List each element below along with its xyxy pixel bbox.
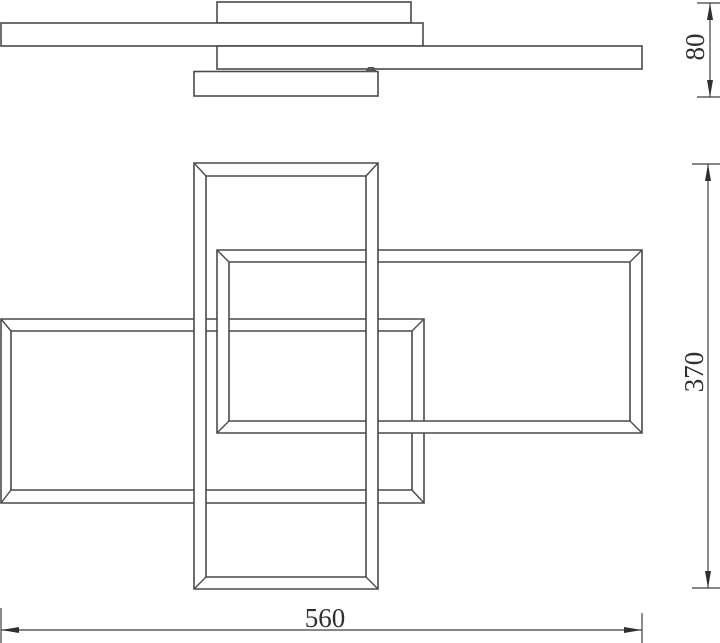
drawing-canvas: 80 370 560 [0, 0, 720, 643]
left-frame-profile [1, 23, 423, 46]
frame-large-band [217, 250, 642, 433]
frame-left-band [1, 319, 424, 503]
frame-left-miters [1, 319, 424, 503]
dimension-80: 80 [680, 3, 720, 97]
large-frame-profile [217, 46, 642, 69]
dimension-560-arrow-right [624, 627, 642, 633]
frame-large-miters [217, 250, 642, 433]
side-view [1, 2, 642, 96]
plan-view [1, 163, 642, 589]
dimension-370-arrow-up [705, 164, 711, 181]
dimension-370-arrow-down [705, 571, 711, 588]
dimension-370: 370 [679, 164, 720, 588]
dimension-560: 560 [1, 603, 642, 643]
vertical-frame-profile [194, 72, 378, 97]
dimension-560-arrow-left [1, 627, 19, 633]
canopy-profile [217, 2, 411, 23]
frame-left [1, 319, 424, 503]
dimension-560-label: 560 [305, 603, 346, 633]
dimension-drawing: 80 370 560 [0, 0, 720, 643]
dimension-80-label: 80 [680, 34, 710, 61]
dimension-80-arrow-down [707, 80, 713, 97]
frame-large [217, 250, 642, 433]
dimension-80-arrow-up [707, 3, 713, 20]
dimension-370-label: 370 [679, 352, 709, 393]
